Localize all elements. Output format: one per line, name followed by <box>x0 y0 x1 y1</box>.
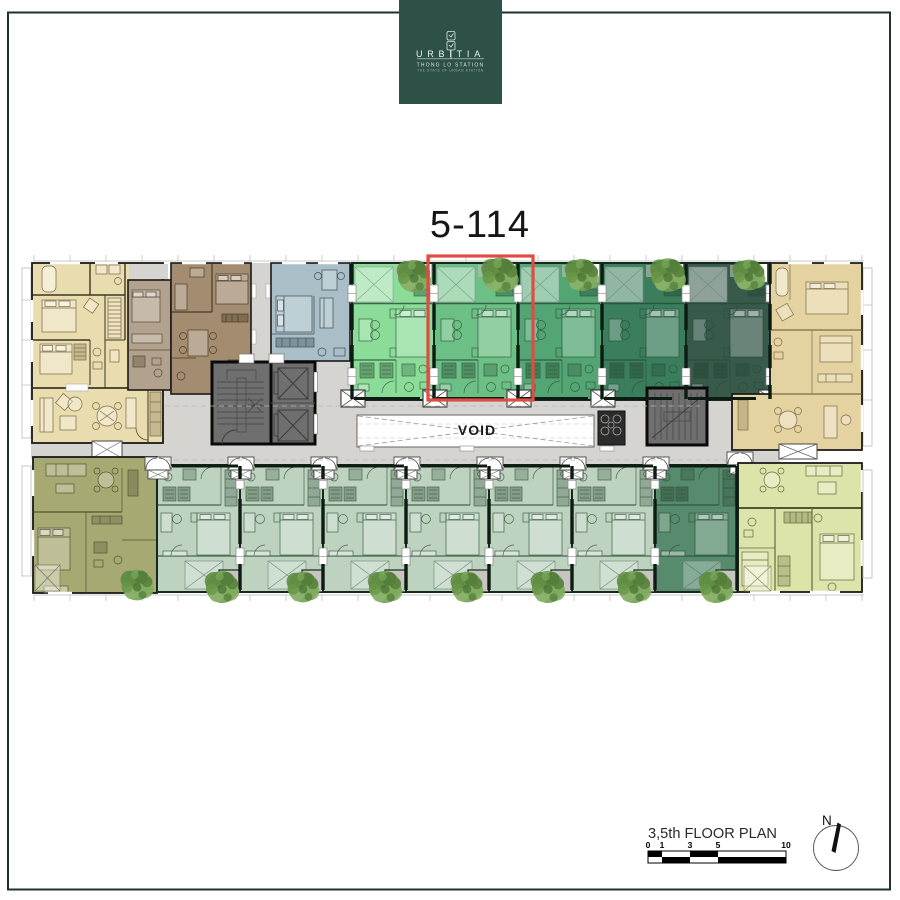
svg-text:10: 10 <box>781 840 791 850</box>
svg-text:0: 0 <box>646 840 651 850</box>
svg-text:URBITIA: URBITIA <box>416 49 485 59</box>
svg-text:1: 1 <box>660 840 665 850</box>
svg-text:3: 3 <box>688 840 693 850</box>
svg-text:3,5th FLOOR PLAN: 3,5th FLOOR PLAN <box>648 826 777 842</box>
svg-text:5-114: 5-114 <box>430 204 530 246</box>
svg-text:THE STATE OF URBAN STATION: THE STATE OF URBAN STATION <box>417 69 484 73</box>
svg-text:N: N <box>822 813 832 828</box>
svg-text:VOID: VOID <box>458 422 496 438</box>
svg-text:5: 5 <box>716 840 721 850</box>
